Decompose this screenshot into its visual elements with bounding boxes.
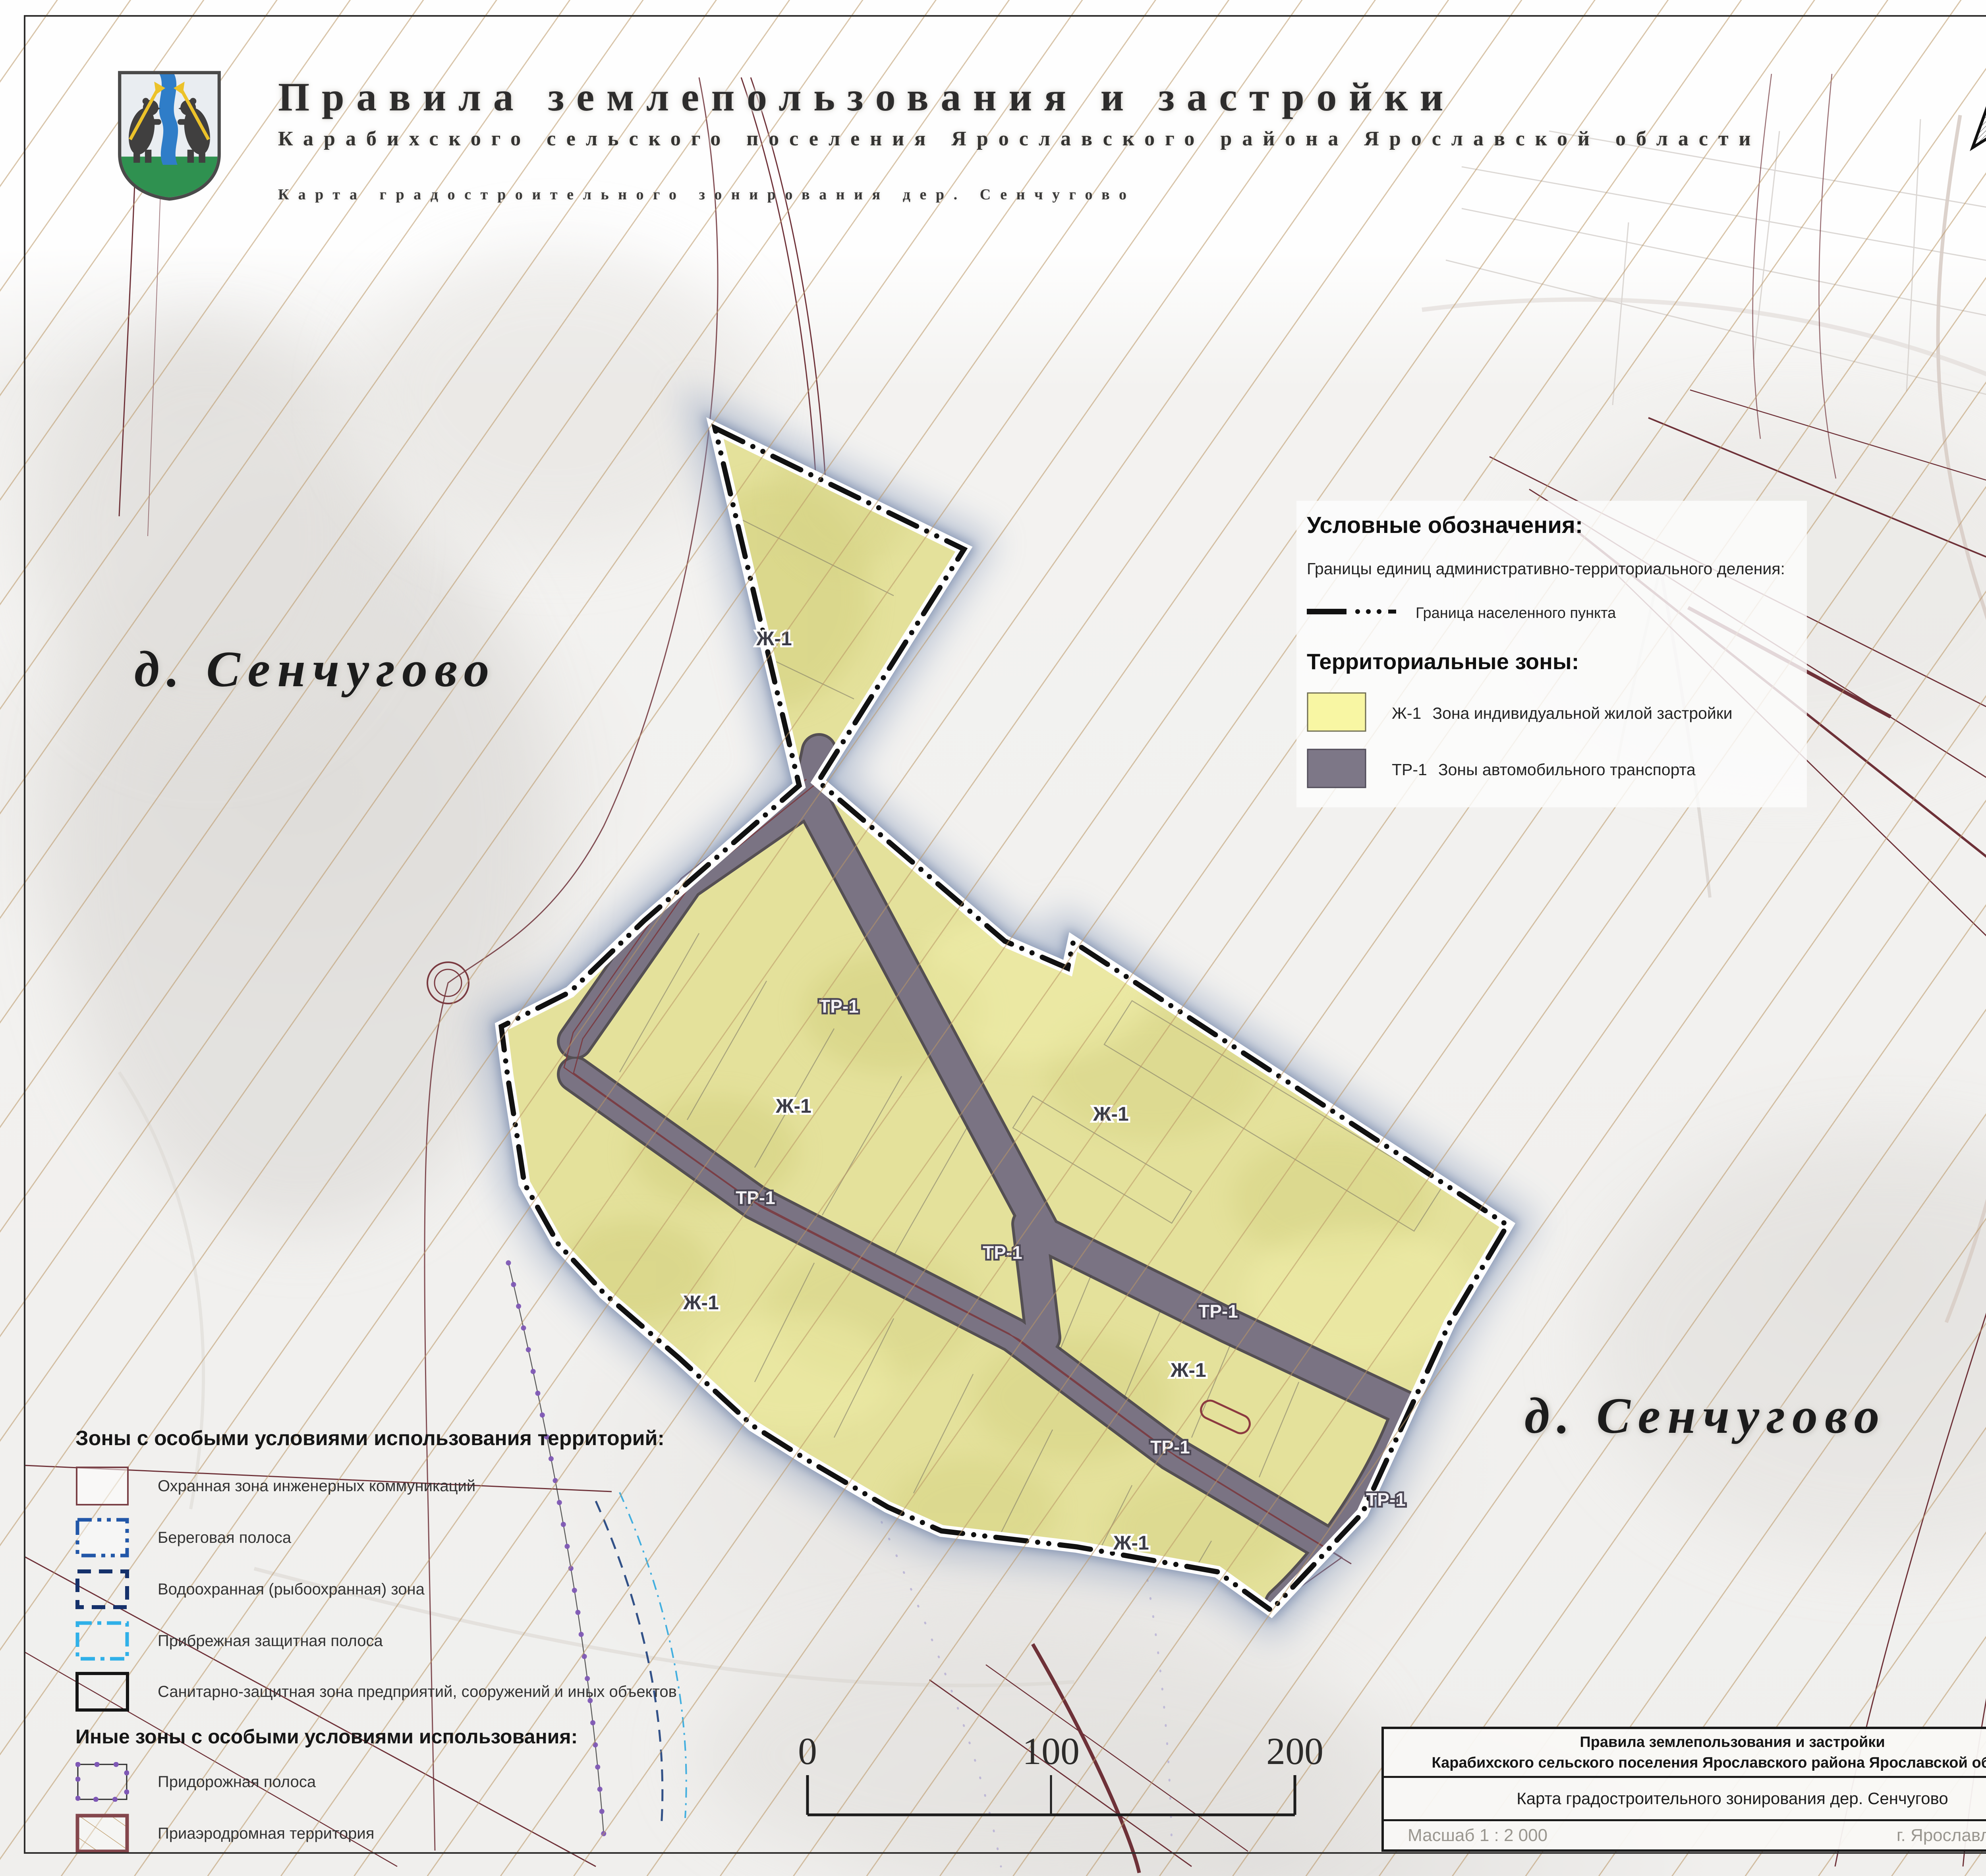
zone-tr1-label: ТР-1Зоны автомобильного транспорта xyxy=(1392,760,1696,779)
legend-admin-title: Границы единиц административно-территори… xyxy=(1307,560,1785,578)
swatch-maroon-solid xyxy=(75,1466,129,1506)
zone-zh1-code: Ж-1 xyxy=(1392,704,1421,722)
zone-label: ТР-1 xyxy=(983,1242,1022,1263)
legend-item-label: Охранная зона инженерных коммуникаций xyxy=(158,1477,475,1495)
zone-label: ТР-1 xyxy=(819,996,859,1017)
scalebar-tick-label: 0 xyxy=(798,1730,817,1772)
legend-item-label: Водоохранная (рыбоохранная) зона xyxy=(158,1581,425,1598)
legend-item-label: Придорожная полоса xyxy=(158,1773,316,1791)
legend-item-shore-strip: Береговая полоса xyxy=(75,1518,291,1558)
legend-item-coastal-protective: Прибрежная защитная полоса xyxy=(75,1621,383,1661)
legend-title: Условные обозначения: xyxy=(1307,512,1583,538)
zone-zh1-label: Ж-1Зона индивидуальной жилой застройки xyxy=(1392,704,1733,723)
legend-item-sanitary: Санитарно-защитная зона предприятий, соо… xyxy=(75,1672,677,1712)
zone-zh1-name: Зона индивидуальной жилой застройки xyxy=(1432,704,1732,722)
swatch-maroon-hatch xyxy=(75,1814,129,1853)
zone-tr1-code: ТР-1 xyxy=(1392,760,1427,779)
special-zones-title: Зоны с особыми условиями использования т… xyxy=(75,1426,665,1450)
other-zones-title: Иные зоны с особыми условиями использова… xyxy=(75,1725,578,1748)
title-block-map-name: Карта градостроительного зонирования дер… xyxy=(1384,1778,1986,1821)
page-subtitle: Карабихского сельского поселения Ярослав… xyxy=(278,127,1761,151)
legend-panel: Условные обозначения: Границы единиц адм… xyxy=(1296,501,1807,807)
zone-label: ТР-1 xyxy=(1198,1301,1238,1322)
swatch-black-solid xyxy=(75,1672,129,1712)
swatch-purple-dotted xyxy=(75,1762,129,1802)
north-arrow-icon xyxy=(1969,83,1986,152)
legend-item-label: Прибрежная защитная полоса xyxy=(158,1632,383,1650)
village-label-right: д. Сенчугово xyxy=(1524,1387,1886,1445)
boundary-label: Граница населенного пункта xyxy=(1416,605,1616,622)
page-title: Правила землепользования и застройки xyxy=(278,74,1455,120)
zone-label: Ж-1 xyxy=(1170,1359,1206,1381)
zoning-map-sheet: Ж-1 ТР-1 Ж-1 Ж-1 ТР-1 ТР-1 Ж-1 ТР-1 Ж-1 … xyxy=(0,0,1986,1876)
basemap-gray-lines xyxy=(1446,119,1986,419)
zone-label: Ж-1 xyxy=(683,1291,719,1314)
scalebar: 0 100 200 xyxy=(786,1720,1343,1831)
legend-item-label: Приаэродромная территория xyxy=(158,1825,374,1843)
legend-item-label: Санитарно-защитная зона предприятий, соо… xyxy=(158,1683,677,1701)
scalebar-tick-label: 200 xyxy=(1266,1730,1323,1772)
zone-tr1-swatch xyxy=(1307,749,1366,788)
coat-of-arms xyxy=(116,70,222,201)
legend-item-roadside-strip: Придорожная полоса xyxy=(75,1762,316,1802)
title-block-place: г. Ярославль 2024 г. xyxy=(1897,1826,1986,1845)
zone-label: ТР-1 xyxy=(1150,1437,1190,1457)
legend-item-utility-protection: Охранная зона инженерных коммуникаций xyxy=(75,1466,475,1506)
legend-item-label: Береговая полоса xyxy=(158,1529,291,1547)
zone-label: Ж-1 xyxy=(775,1095,811,1117)
page-map-line: Карта градостроительного зонирования дер… xyxy=(278,186,1136,203)
boundary-symbol xyxy=(1307,607,1406,616)
legend-zones-title: Территориальные зоны: xyxy=(1307,648,1579,674)
title-block-line2: Карабихского сельского поселения Ярослав… xyxy=(1432,1752,1986,1773)
swatch-blue-dashdotdot xyxy=(75,1518,129,1558)
zone-label: ТР-1 xyxy=(736,1187,775,1208)
scalebar-tick-label: 100 xyxy=(1022,1730,1080,1772)
village-label-left: д. Сенчугово xyxy=(134,640,496,699)
zone-tr1-name: Зоны автомобильного транспорта xyxy=(1438,760,1696,779)
title-block-header-row: Правила землепользования и застройки Кар… xyxy=(1384,1729,1986,1778)
legend-item-water-protection: Водоохранная (рыбоохранная) зона xyxy=(75,1569,425,1609)
zone-label: Ж-1 xyxy=(1113,1532,1149,1554)
title-block-scale: Масшаб 1 : 2 000 xyxy=(1408,1826,1547,1845)
zone-label: ТР-1 xyxy=(1366,1489,1406,1510)
zone-label: Ж-1 xyxy=(1093,1103,1129,1125)
legend-item-aerodrome-territory: Приаэродромная территория xyxy=(75,1814,374,1853)
swatch-navy-dash xyxy=(75,1569,129,1609)
title-block: Правила землепользования и застройки Кар… xyxy=(1381,1727,1986,1852)
zone-label: Ж-1 xyxy=(756,627,792,650)
title-block-bottom-row: Масшаб 1 : 2 000 г. Ярославль 2024 г. xyxy=(1384,1821,1986,1849)
swatch-cyan-dashdot xyxy=(75,1621,129,1661)
zone-zh1-swatch xyxy=(1307,692,1366,732)
title-block-line1: Правила землепользования и застройки xyxy=(1580,1732,1885,1752)
